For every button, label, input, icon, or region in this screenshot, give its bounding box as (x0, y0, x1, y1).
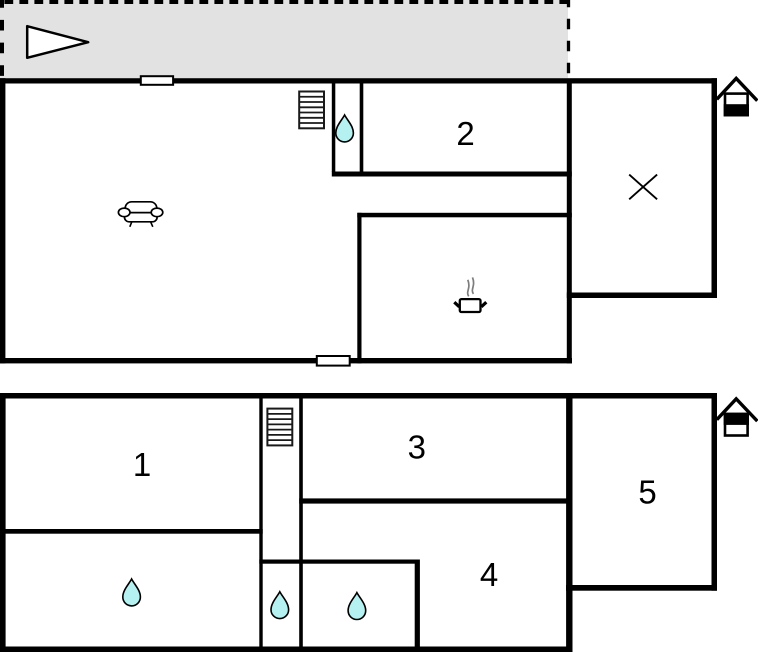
svg-text:1: 1 (133, 446, 151, 483)
svg-text:5: 5 (638, 474, 656, 511)
svg-text:3: 3 (408, 429, 426, 466)
svg-text:4: 4 (480, 556, 498, 593)
svg-text:2: 2 (456, 115, 474, 152)
